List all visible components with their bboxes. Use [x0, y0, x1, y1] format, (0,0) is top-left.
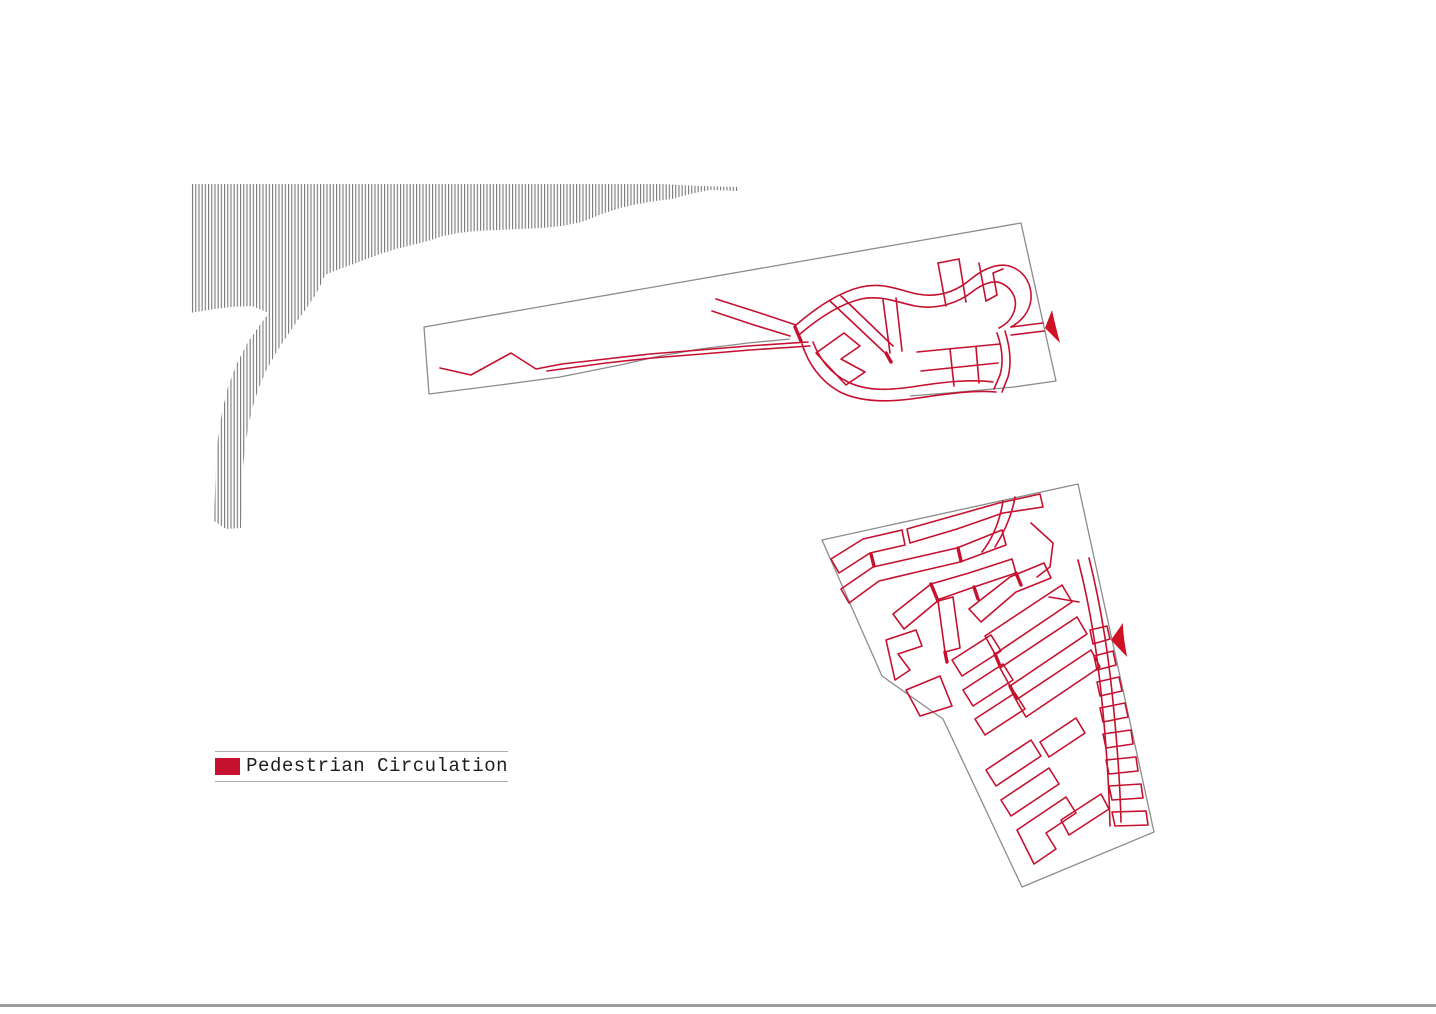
circulation-path — [917, 344, 1000, 352]
circulation-path — [1011, 331, 1044, 335]
circulation-junction — [945, 652, 947, 662]
circulation-block — [841, 530, 1006, 603]
circulation-block — [1016, 650, 1100, 717]
legend: Pedestrian Circulation — [215, 751, 508, 782]
circulation-block — [1112, 811, 1148, 826]
upper-site-outline — [424, 223, 1056, 396]
circulation-path — [959, 259, 966, 302]
circulation-path — [440, 342, 808, 375]
circulation-path — [800, 282, 1015, 334]
circulation-block — [1000, 617, 1087, 686]
circulation-path — [938, 259, 959, 263]
circulation-block — [886, 630, 922, 680]
circulation-block — [1109, 784, 1143, 800]
circulation-junction — [995, 654, 1000, 666]
circulation-block — [907, 494, 1043, 543]
circulation-block — [969, 563, 1051, 622]
north-arrow-icon — [1045, 310, 1060, 343]
circulation-path — [1031, 523, 1053, 577]
circulation-path — [921, 363, 998, 371]
circulation-path — [1049, 597, 1079, 602]
site-diagram — [0, 0, 1436, 1014]
circulation-path — [802, 344, 996, 401]
circulation-path — [1089, 558, 1121, 822]
circulation-block — [1040, 718, 1085, 757]
legend-swatch — [215, 758, 240, 775]
circulation-junction — [958, 548, 961, 561]
circulation-junction — [886, 353, 891, 362]
circulation-block — [938, 597, 960, 652]
circulation-path — [982, 501, 1003, 552]
circulation-block — [1103, 730, 1133, 748]
circulation-junction — [871, 554, 874, 566]
circulation-junction — [1016, 573, 1021, 585]
circulation-path — [712, 311, 790, 336]
upper-site-plan — [424, 223, 1060, 401]
legend-swatch-color — [215, 758, 240, 775]
circulation-path — [547, 346, 810, 371]
upper-circulation-network — [440, 259, 1044, 401]
circulation-path — [979, 263, 986, 301]
circulation-block — [831, 530, 905, 573]
circulation-path — [1078, 560, 1110, 826]
analysis-sheet: Pedestrian Circulation — [0, 0, 1436, 1014]
circulation-junction — [931, 584, 938, 601]
circulation-block — [906, 676, 952, 716]
circulation-junction — [974, 587, 978, 599]
circulation-block — [1106, 757, 1138, 774]
circulation-block — [1001, 768, 1059, 816]
circulation-path — [994, 333, 1002, 389]
lower-circulation-network — [831, 494, 1148, 864]
lower-site-plan — [822, 484, 1154, 887]
circulation-block — [985, 585, 1072, 654]
circulation-path — [716, 299, 796, 325]
circulation-path — [883, 300, 890, 353]
legend-label: Pedestrian Circulation — [246, 756, 508, 776]
circulation-block — [893, 559, 1016, 629]
circulation-path — [896, 298, 902, 351]
circulation-path — [986, 269, 1003, 301]
footer-rule — [0, 1004, 1436, 1007]
circulation-path — [938, 263, 946, 306]
circulation-path — [1002, 331, 1010, 392]
